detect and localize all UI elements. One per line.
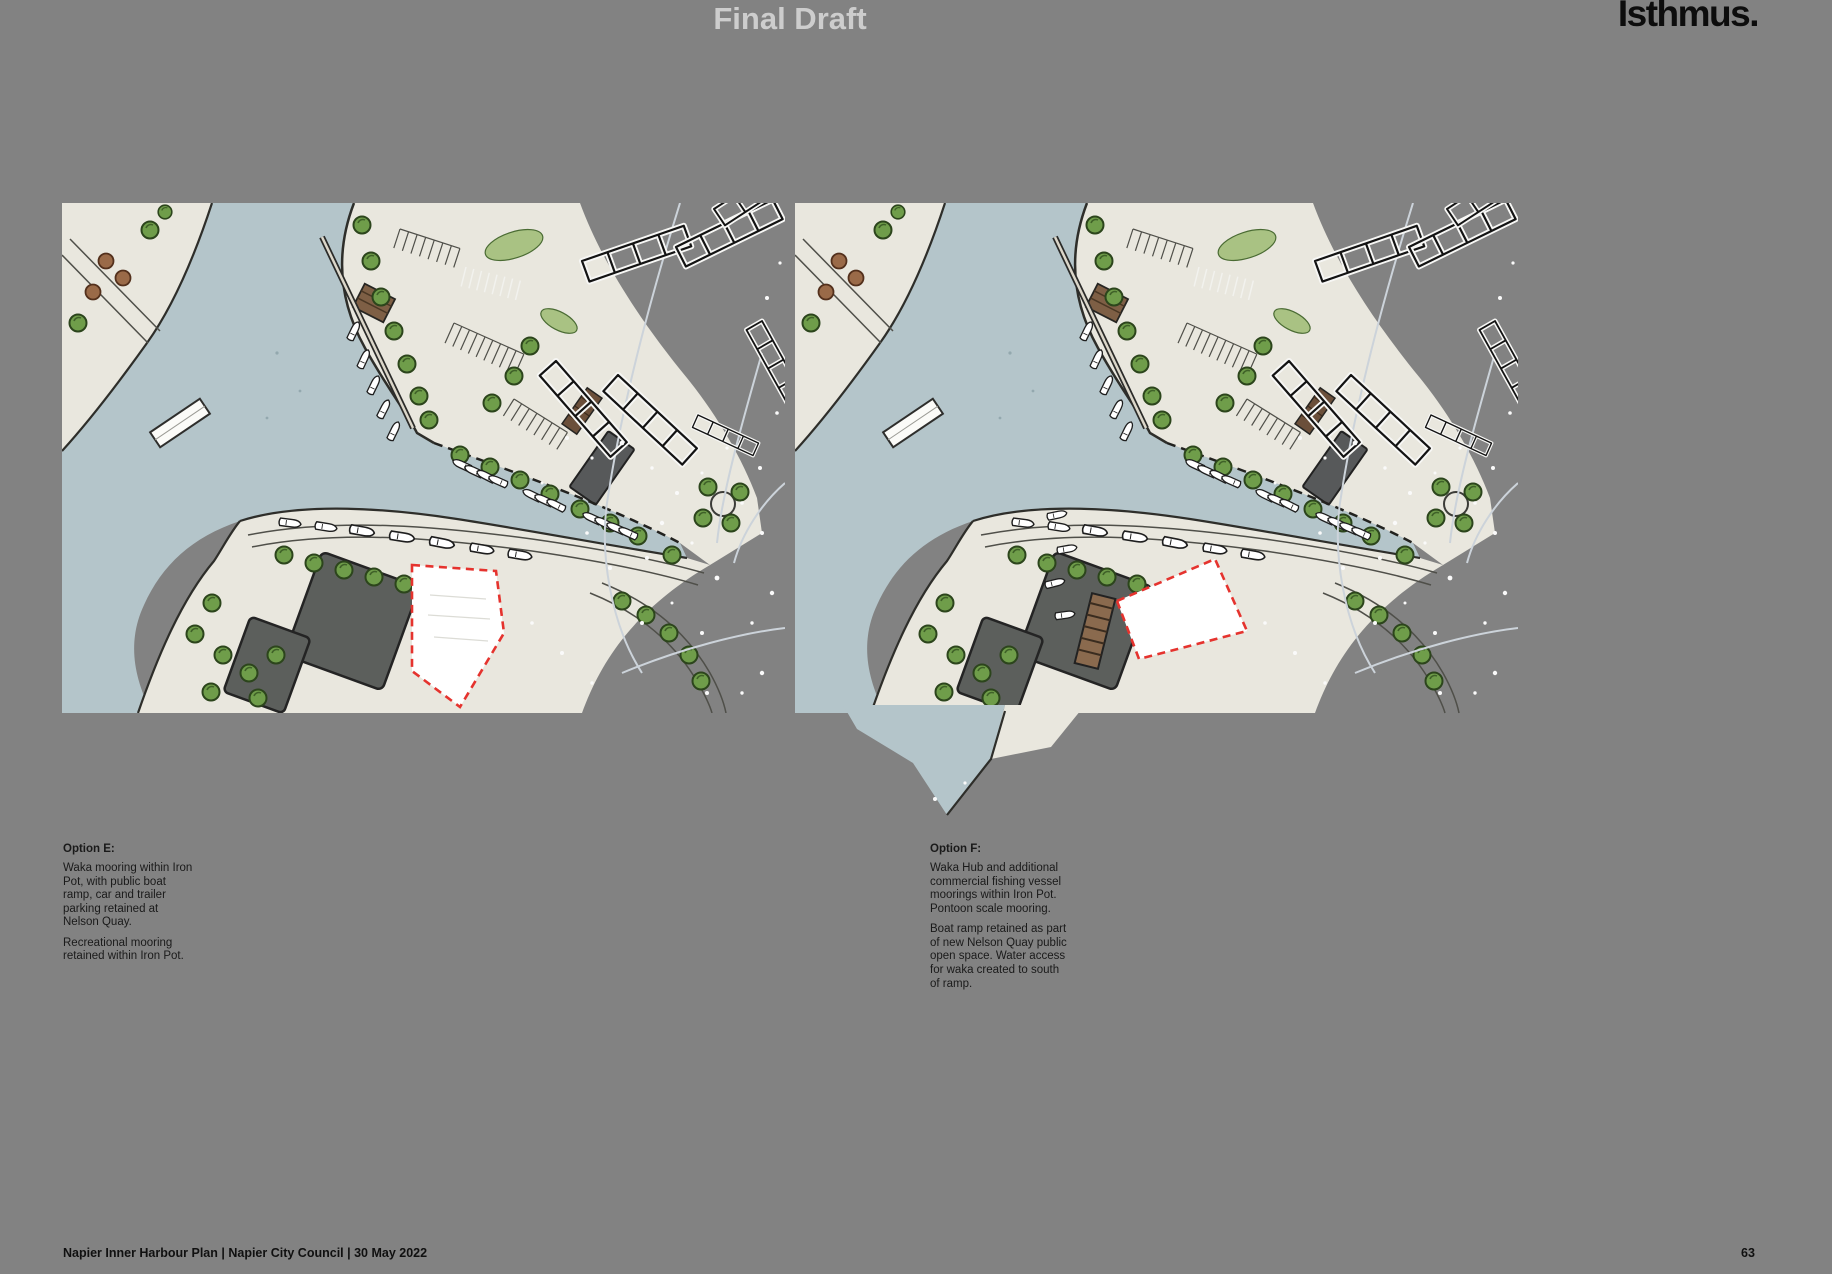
map-option-e [62, 203, 785, 713]
document-page: Final Draft Isthmus. [0, 0, 1832, 1274]
option-e-paragraph-1: Waka mooring within Iron Pot, with publi… [63, 862, 195, 930]
option-f-paragraph-2: Boat ramp retained as part of new Nelson… [930, 923, 1068, 991]
option-e-paragraph-2: Recreational mooring retained within Iro… [63, 937, 195, 964]
option-f-paragraph-1: Waka Hub and additional commercial fishi… [930, 862, 1068, 916]
caption-option-f: Option F: Waka Hub and additional commer… [930, 843, 1068, 998]
page-title: Final Draft [713, 1, 866, 37]
option-e-heading: Option E: [63, 843, 195, 855]
footer-text: Napier Inner Harbour Plan | Napier City … [63, 1246, 427, 1260]
option-f-heading: Option F: [930, 843, 1068, 855]
brand-logo: Isthmus. [1618, 0, 1758, 35]
page-number: 63 [1741, 1246, 1755, 1260]
map-option-f [795, 203, 1518, 828]
caption-option-e: Option E: Waka mooring within Iron Pot, … [63, 843, 195, 971]
water-extension-south [843, 705, 1085, 815]
